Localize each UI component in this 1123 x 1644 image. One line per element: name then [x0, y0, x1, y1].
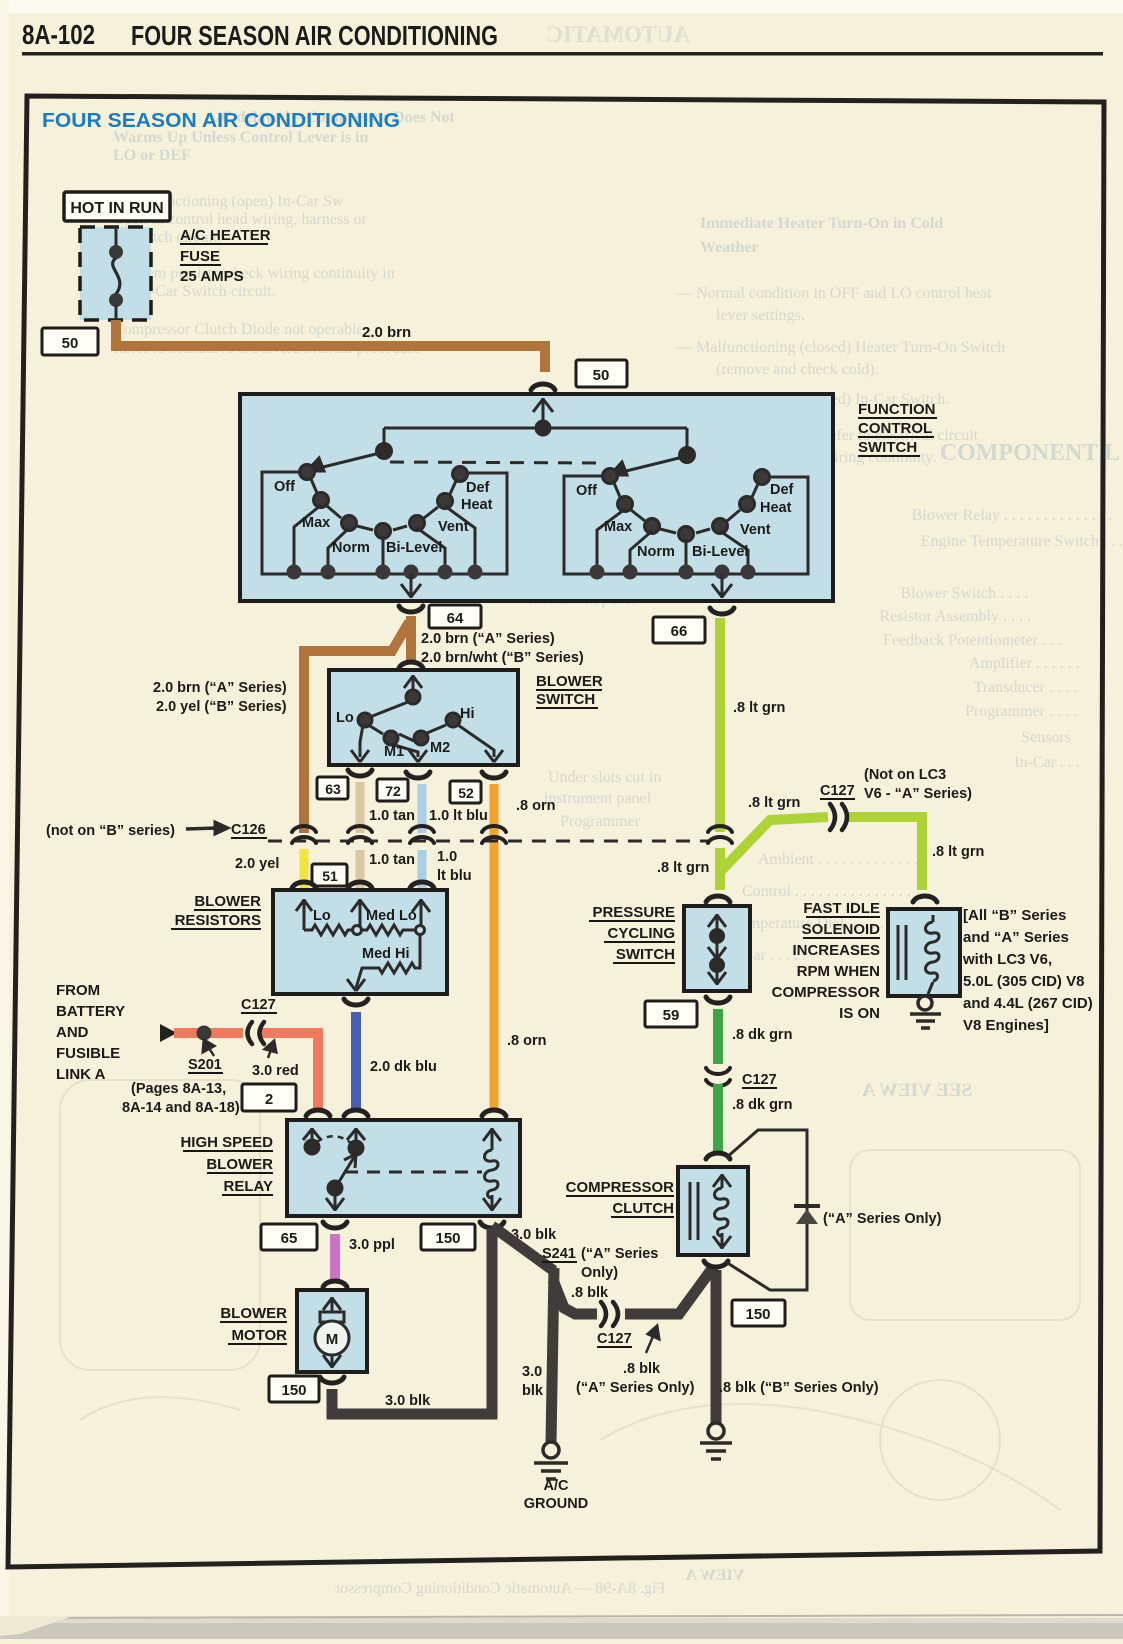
- svg-text:S201: S201: [188, 1057, 222, 1073]
- svg-text:(“A” Series Only): (“A” Series Only): [576, 1380, 695, 1396]
- svg-text:and 4.4L (267 CID): and 4.4L (267 CID): [963, 995, 1093, 1012]
- svg-text:FOUR SEASON AIR CONDITIONING: FOUR SEASON AIR CONDITIONING: [131, 20, 498, 51]
- svg-text:Under slots cut in: Under slots cut in: [548, 769, 661, 786]
- svg-text:Norm: Norm: [637, 544, 675, 560]
- svg-text:Bi-Level: Bi-Level: [386, 540, 442, 556]
- svg-text:PRESSURE: PRESSURE: [592, 904, 675, 921]
- svg-text:.8 dk grn: .8 dk grn: [732, 1027, 792, 1043]
- svg-text:FROM: FROM: [56, 982, 100, 999]
- svg-text:Hi: Hi: [460, 706, 475, 722]
- svg-text:25 AMPS: 25 AMPS: [180, 268, 244, 285]
- svg-text:instrument panel: instrument panel: [544, 790, 652, 807]
- svg-text:Fig. 8A-98 — Automatic Conditi: Fig. 8A-98 — Automatic Conditioning Comp…: [334, 1580, 665, 1597]
- svg-text:Lo: Lo: [336, 710, 354, 726]
- svg-text:.8 lt grn: .8 lt grn: [748, 795, 800, 811]
- svg-text:HIGH SPEED: HIGH SPEED: [180, 1134, 273, 1151]
- svg-text:Off: Off: [274, 479, 295, 495]
- svg-text:63: 63: [325, 781, 341, 797]
- svg-text:59: 59: [663, 1007, 680, 1024]
- svg-text:Programmer . . . .: Programmer . . . .: [965, 703, 1077, 720]
- svg-text:FAST IDLE: FAST IDLE: [803, 900, 880, 917]
- svg-text:66: 66: [671, 623, 688, 640]
- svg-text:Sensors: Sensors: [1021, 729, 1071, 746]
- svg-text:.8 blk (“B” Series Only): .8 blk (“B” Series Only): [719, 1380, 879, 1396]
- svg-text:Compressor Clutch Diode not op: Compressor Clutch Diode not operable: [113, 321, 364, 338]
- svg-text:RESISTORS: RESISTORS: [175, 912, 261, 929]
- svg-text:5.0L (305 CID) V8: 5.0L (305 CID) V8: [963, 973, 1084, 990]
- svg-text:Max: Max: [604, 519, 632, 535]
- svg-text:Heat: Heat: [760, 500, 792, 516]
- svg-text:Blower Switch . . . .: Blower Switch . . . .: [900, 585, 1028, 602]
- svg-text:1.0: 1.0: [437, 849, 457, 865]
- svg-text:.8 orn: .8 orn: [507, 1033, 546, 1049]
- svg-text:CONTROL: CONTROL: [858, 420, 932, 437]
- svg-text:Control . . . . . . . . . . .: Control . . . . . . . . . . . . . . . .: [742, 883, 919, 900]
- svg-text:RPM WHEN: RPM WHEN: [797, 963, 880, 980]
- svg-text:M2: M2: [430, 740, 450, 756]
- svg-text:blk: blk: [522, 1383, 544, 1399]
- svg-text:Max: Max: [302, 515, 330, 531]
- svg-text:(not on “B” series): (not on “B” series): [46, 823, 175, 839]
- svg-text:3.0 ppl: 3.0 ppl: [349, 1237, 395, 1253]
- svg-text:2.0 yel (“B” Series): 2.0 yel (“B” Series): [156, 699, 287, 715]
- svg-text:.8 lt grn: .8 lt grn: [733, 700, 785, 716]
- svg-text:FUNCTION: FUNCTION: [858, 401, 936, 418]
- svg-text:72: 72: [385, 783, 401, 799]
- svg-text:51: 51: [322, 868, 338, 884]
- svg-text:IS ON: IS ON: [839, 1005, 880, 1022]
- svg-text:VIEW A: VIEW A: [685, 1567, 744, 1584]
- svg-text:M: M: [326, 1331, 339, 1348]
- svg-text:RELAY: RELAY: [224, 1178, 273, 1195]
- svg-text:A/C: A/C: [544, 1478, 570, 1494]
- svg-text:8A-102: 8A-102: [22, 19, 95, 50]
- svg-text:C127: C127: [241, 997, 276, 1013]
- svg-text:C127: C127: [820, 783, 855, 799]
- svg-text:150: 150: [281, 1382, 306, 1399]
- svg-text:Immediate Heater Turn-On in Co: Immediate Heater Turn-On in Cold: [700, 215, 943, 232]
- svg-text:FOUR SEASON AIR CONDITIONING: FOUR SEASON AIR CONDITIONING: [42, 110, 400, 132]
- svg-text:2.0 brn (“A” Series): 2.0 brn (“A” Series): [421, 631, 555, 647]
- svg-text:Norm: Norm: [332, 540, 370, 556]
- svg-text:AUTOMATIC: AUTOMATIC: [546, 22, 690, 47]
- svg-text:2.0 yel: 2.0 yel: [235, 856, 279, 872]
- svg-text:.8 blk: .8 blk: [623, 1361, 661, 1377]
- svg-text:S241: S241: [542, 1246, 576, 1262]
- svg-text:COMPRESSOR: COMPRESSOR: [566, 1179, 675, 1196]
- svg-text:lt blu: lt blu: [437, 868, 472, 884]
- svg-text:COMPONENT L: COMPONENT L: [940, 440, 1120, 466]
- svg-text:150: 150: [745, 1306, 770, 1323]
- svg-text:.8 lt grn: .8 lt grn: [932, 844, 984, 860]
- svg-text:Engine Temperature Switch . .: Engine Temperature Switch . . .: [921, 533, 1123, 550]
- svg-text:2.0 brn: 2.0 brn: [362, 324, 411, 341]
- svg-text:.8 lt grn: .8 lt grn: [657, 860, 709, 876]
- svg-text:Weather: Weather: [700, 239, 759, 256]
- svg-text:C127: C127: [597, 1331, 632, 1347]
- svg-text:Med Hi: Med Hi: [362, 946, 410, 962]
- svg-text:BLOWER: BLOWER: [206, 1156, 273, 1173]
- svg-text:— Malfunctioning (closed) Heat: — Malfunctioning (closed) Heater Turn-On…: [675, 339, 1005, 356]
- svg-text:(Pages 8A-13,: (Pages 8A-13,: [131, 1081, 226, 1097]
- svg-text:and “A” Series: and “A” Series: [963, 929, 1069, 946]
- svg-text:SWITCH: SWITCH: [858, 439, 917, 456]
- svg-text:50: 50: [62, 335, 79, 352]
- svg-text:Programmer: Programmer: [560, 813, 641, 830]
- svg-text:SWITCH: SWITCH: [536, 691, 595, 708]
- svg-text:Off: Off: [576, 483, 597, 499]
- svg-text:Def: Def: [770, 482, 794, 498]
- svg-text:1.0 tan: 1.0 tan: [369, 852, 415, 868]
- svg-text:Heat: Heat: [461, 497, 493, 513]
- svg-text:8A-14 and 8A-18): 8A-14 and 8A-18): [122, 1100, 240, 1116]
- svg-text:150: 150: [435, 1230, 460, 1247]
- svg-text:LINK A: LINK A: [56, 1066, 106, 1083]
- svg-text:Med Lo: Med Lo: [366, 908, 417, 924]
- svg-text:Ambient . . . . . . . . . . .: Ambient . . . . . . . . . . . . .: [758, 851, 918, 868]
- svg-text:C127: C127: [742, 1072, 777, 1088]
- svg-text:SWITCH: SWITCH: [616, 946, 675, 963]
- svg-text:2: 2: [265, 1091, 273, 1108]
- svg-text:LO or DEF: LO or DEF: [113, 147, 191, 164]
- svg-text:.8 orn: .8 orn: [516, 798, 555, 814]
- svg-text:2.0 brn/wht (“B” Series): 2.0 brn/wht (“B” Series): [421, 650, 584, 666]
- svg-text:64: 64: [447, 610, 464, 627]
- svg-text:HOT IN RUN: HOT IN RUN: [70, 200, 163, 217]
- svg-text:lever settings.: lever settings.: [716, 307, 805, 324]
- svg-text:(Not on LC3: (Not on LC3: [864, 767, 946, 783]
- svg-text:Vent: Vent: [740, 522, 771, 538]
- svg-text:3.0 blk: 3.0 blk: [385, 1393, 431, 1409]
- svg-text:In-Car . . .: In-Car . . .: [1014, 754, 1080, 771]
- svg-text:Bi-Level: Bi-Level: [692, 544, 748, 560]
- svg-text:3.0: 3.0: [522, 1364, 542, 1380]
- svg-text:A/C HEATER: A/C HEATER: [180, 227, 271, 244]
- svg-text:(“A” Series: (“A” Series: [581, 1246, 658, 1262]
- svg-text:— Normal condition in OFF and: — Normal condition in OFF and LO control…: [675, 285, 992, 302]
- svg-text:1.0 tan: 1.0 tan: [369, 808, 415, 824]
- svg-text:Lo: Lo: [313, 908, 331, 924]
- svg-text:problem persists, check wiring: problem persists, check wiring continuit…: [113, 265, 395, 282]
- svg-text:65: 65: [281, 1230, 298, 1247]
- svg-text:2.0 dk blu: 2.0 dk blu: [370, 1059, 437, 1075]
- svg-text:BLOWER: BLOWER: [536, 673, 603, 690]
- svg-text:Transducer . . . .: Transducer . . . .: [974, 679, 1077, 696]
- svg-text:BLOWER: BLOWER: [194, 893, 261, 910]
- svg-text:Feedback Potentiometer . . .: Feedback Potentiometer . . .: [883, 632, 1062, 649]
- svg-text:C126: C126: [231, 822, 266, 838]
- svg-text:BLOWER: BLOWER: [220, 1305, 287, 1322]
- svg-text:52: 52: [458, 785, 474, 801]
- svg-text:.8 blk: .8 blk: [571, 1285, 609, 1301]
- svg-text:Blower Relay . . . . . . . . .: Blower Relay . . . . . . . . . . . . . .: [912, 507, 1112, 524]
- svg-text:MOTOR: MOTOR: [231, 1327, 287, 1344]
- svg-text:.8 dk grn: .8 dk grn: [732, 1097, 792, 1113]
- svg-text:1.0 lt blu: 1.0 lt blu: [429, 808, 488, 824]
- svg-text:M1: M1: [384, 744, 404, 760]
- svg-text:2.0 brn (“A” Series): 2.0 brn (“A” Series): [153, 680, 287, 696]
- svg-text:with LC3 V6,: with LC3 V6,: [962, 951, 1052, 968]
- svg-text:SEE VIEW A: SEE VIEW A: [862, 1080, 972, 1101]
- svg-text:FUSIBLE: FUSIBLE: [56, 1045, 120, 1062]
- svg-text:GROUND: GROUND: [524, 1496, 588, 1512]
- svg-text:CLUTCH: CLUTCH: [612, 1200, 674, 1217]
- svg-text:50: 50: [593, 367, 610, 384]
- svg-text:[All “B” Series: [All “B” Series: [963, 907, 1066, 924]
- svg-text:V6 - “A” Series): V6 - “A” Series): [864, 786, 972, 802]
- svg-text:INCREASES: INCREASES: [792, 942, 880, 959]
- svg-text:V8 Engines]: V8 Engines]: [963, 1017, 1049, 1034]
- svg-text:BATTERY: BATTERY: [56, 1003, 125, 1020]
- svg-text:Def: Def: [466, 480, 490, 496]
- svg-text:COMPRESSOR: COMPRESSOR: [772, 984, 881, 1001]
- svg-text:CYCLING: CYCLING: [608, 925, 676, 942]
- svg-text:SOLENOID: SOLENOID: [802, 921, 881, 938]
- svg-text:(“A” Series Only): (“A” Series Only): [823, 1211, 942, 1227]
- svg-text:Vent: Vent: [438, 519, 469, 535]
- svg-text:Only): Only): [581, 1265, 618, 1281]
- svg-text:FUSE: FUSE: [180, 248, 220, 265]
- svg-text:3.0 red: 3.0 red: [252, 1063, 299, 1079]
- svg-text:Resistor Assembly . . . .: Resistor Assembly . . . .: [879, 608, 1031, 625]
- svg-text:(remove and check cold).: (remove and check cold).: [716, 361, 879, 378]
- svg-text:AND: AND: [56, 1024, 89, 1041]
- svg-text:Amplifier . . . . . .: Amplifier . . . . . .: [969, 655, 1080, 672]
